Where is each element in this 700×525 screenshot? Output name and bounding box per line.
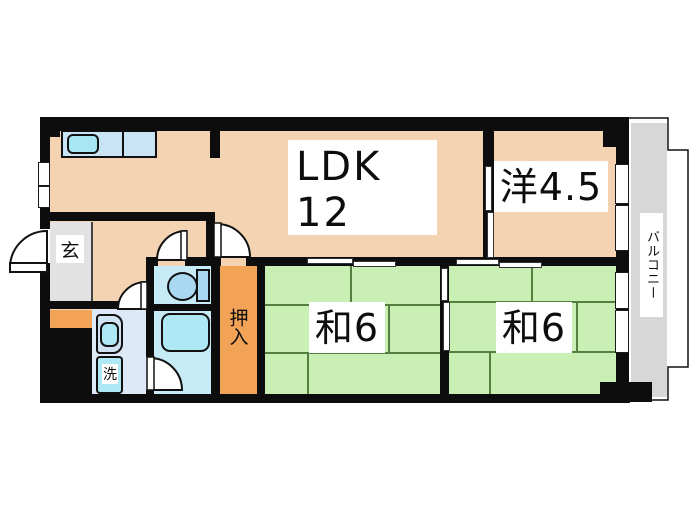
wall <box>210 124 220 158</box>
wall <box>40 394 630 403</box>
tatami-seam <box>350 262 352 304</box>
wall <box>211 257 220 397</box>
window <box>38 162 50 208</box>
sliding-door <box>485 166 492 211</box>
sliding-door <box>353 261 396 267</box>
sliding-door <box>441 268 448 301</box>
sliding-door <box>443 302 450 351</box>
sliding-door <box>456 259 499 265</box>
balcony-label: バルコニー <box>640 213 663 317</box>
pipe-space <box>43 328 92 402</box>
hall-door-swing-icon <box>213 220 251 259</box>
kitchen-sink <box>67 134 99 154</box>
bathtub <box>161 313 210 352</box>
shoe-cabinet <box>48 310 92 328</box>
closet-label: 押入 <box>226 298 250 356</box>
japanese-room-2-label: 和6 <box>496 302 572 353</box>
sliding-window <box>615 310 629 353</box>
sliding-door <box>307 258 353 264</box>
entrance-label: 玄 <box>56 235 84 263</box>
vanity-basin <box>100 322 119 347</box>
washroom-door-swing-icon <box>116 280 148 311</box>
sliding-door <box>487 212 494 258</box>
tatami-seam <box>307 352 309 396</box>
ldk-label: LDK <box>296 144 381 190</box>
tatami-seam <box>388 304 390 352</box>
ldk-size-label: 12 <box>296 190 381 236</box>
japanese-room-1-label: 和6 <box>309 302 385 353</box>
ldk-label-box: LDK 12 <box>288 140 437 235</box>
wall <box>603 125 629 147</box>
toilet-fixture <box>167 272 198 301</box>
wall <box>40 301 118 309</box>
entrance-door-swing-icon <box>8 228 50 274</box>
counter-divider <box>122 131 124 157</box>
sliding-window <box>615 205 629 251</box>
wall <box>146 304 220 311</box>
sliding-door <box>499 262 542 268</box>
floor-plan: LDK 12 洋4.5 和6 和6 玄 押入 洗 バルコニー <box>0 0 700 525</box>
bath-door-swing-icon <box>145 355 183 392</box>
sliding-window <box>615 164 629 204</box>
western-room-label: 洋4.5 <box>494 161 608 212</box>
wall <box>40 117 60 137</box>
wall <box>43 212 215 221</box>
tatami-seam <box>489 351 491 396</box>
wall <box>40 117 629 131</box>
sliding-window <box>615 272 629 309</box>
toilet-door-swing-icon <box>155 229 189 263</box>
wall <box>257 259 265 397</box>
tatami-seam <box>576 301 578 351</box>
laundry-label: 洗 <box>102 364 118 384</box>
genkan-step-edge <box>91 222 93 302</box>
wall <box>600 382 652 402</box>
toilet-tank <box>196 269 210 302</box>
